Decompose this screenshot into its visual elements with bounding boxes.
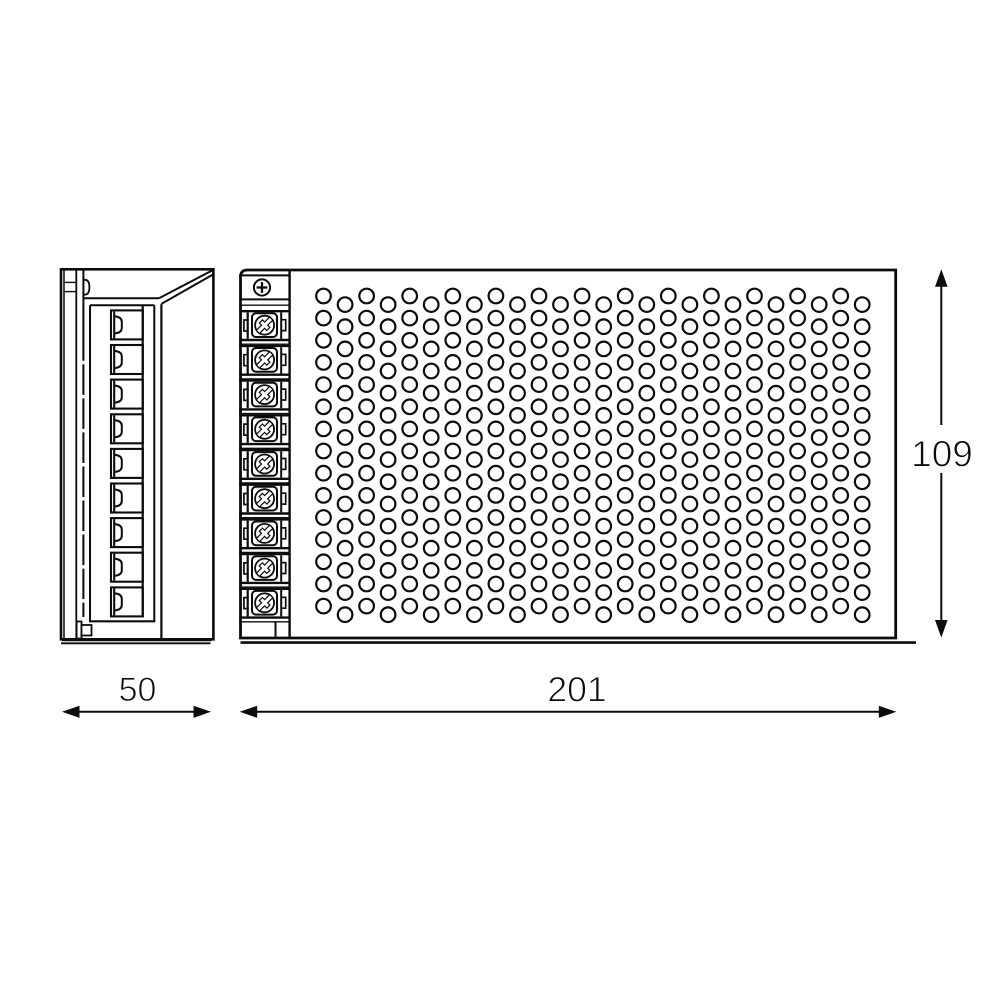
svg-text:50: 50 [119, 671, 157, 709]
svg-text:109: 109 [911, 434, 973, 475]
svg-text:201: 201 [547, 670, 606, 710]
